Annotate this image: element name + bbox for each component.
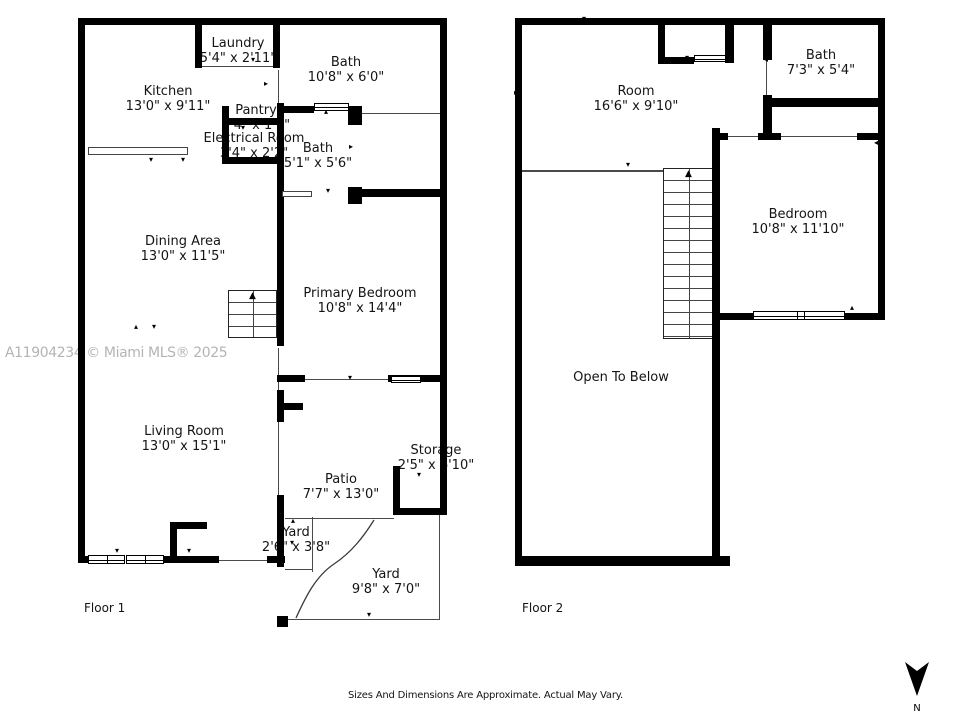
wall-segment bbox=[277, 103, 284, 346]
wall-segment bbox=[763, 18, 772, 60]
wall-segment bbox=[352, 189, 447, 197]
wall-segment bbox=[267, 556, 285, 563]
window-symbol bbox=[314, 103, 349, 111]
stairs-floor1: ▲ bbox=[228, 290, 277, 338]
door-swing-tick-icon: ▴ bbox=[291, 517, 295, 525]
yard-boundary-line bbox=[439, 515, 440, 620]
door-swing-tick-icon: ▴ bbox=[134, 323, 138, 331]
wall-segment bbox=[758, 133, 781, 140]
door-swing-tick-icon: ▾ bbox=[685, 54, 689, 62]
window-symbol bbox=[694, 55, 726, 62]
door-swing-tick-icon: ▴ bbox=[850, 304, 854, 312]
door-swing-tick-icon: ▾ bbox=[251, 56, 255, 64]
door-swing-tick-icon: ▾ bbox=[851, 99, 855, 107]
room-label-kitchen: Kitchen13'0" x 9'11" bbox=[126, 84, 211, 114]
thin-line bbox=[278, 70, 279, 103]
window-symbol bbox=[126, 555, 164, 564]
door-swing-tick-icon: ◂ bbox=[78, 446, 82, 454]
wall-segment bbox=[229, 118, 280, 125]
door-swing-tick-icon: ▾ bbox=[152, 323, 156, 331]
wall-segment bbox=[515, 18, 885, 25]
door-swing-tick-icon: ◂ bbox=[80, 80, 84, 88]
wall-segment bbox=[440, 18, 447, 515]
thin-line bbox=[202, 66, 273, 67]
wall-segment bbox=[277, 375, 305, 382]
window-mullion bbox=[145, 556, 146, 563]
wall-segment bbox=[725, 18, 734, 63]
floor2-label: Floor 2 bbox=[522, 601, 563, 615]
counter-symbol bbox=[282, 191, 312, 197]
yard-boundary-line bbox=[288, 619, 440, 620]
room-label-bedroom: Bedroom10'8" x 11'10" bbox=[752, 207, 845, 237]
door-swing-tick-icon: ▾ bbox=[582, 15, 586, 23]
door-swing-tick-icon: ▾ bbox=[290, 539, 294, 547]
yard-boundary-line bbox=[312, 517, 313, 572]
window-mullion bbox=[797, 312, 798, 319]
door-swing-tick-icon: ▾ bbox=[814, 17, 818, 25]
door-swing-tick-icon: ▾ bbox=[417, 471, 421, 479]
thin-line bbox=[362, 113, 440, 114]
floorplan-canvas: A11904234 © Miami MLS® 2025 Laundry5'4" … bbox=[0, 0, 960, 720]
wall-segment bbox=[393, 508, 447, 515]
room-label-storage: Storage2'5" x 6'10" bbox=[398, 443, 474, 473]
room-label-room: Room16'6" x 9'10" bbox=[594, 84, 679, 114]
open-to-below-line bbox=[522, 170, 663, 172]
wall-segment bbox=[712, 128, 720, 556]
stairs-up-arrow-icon: ▲ bbox=[249, 291, 256, 301]
door-swing-tick-icon: ▾ bbox=[149, 156, 153, 164]
door-swing-tick-icon: ▾ bbox=[367, 611, 371, 619]
wall-segment bbox=[195, 18, 202, 68]
door-swing-tick-icon: ▸ bbox=[514, 89, 518, 97]
wall-segment bbox=[222, 106, 229, 164]
door-swing-tick-icon: ▴ bbox=[767, 122, 771, 130]
room-label-yard: Yard9'8" x 7'0" bbox=[352, 567, 420, 597]
window-mullion bbox=[804, 312, 805, 319]
stairs-floor2: ▲ bbox=[663, 168, 714, 339]
north-indicator: N bbox=[902, 662, 932, 710]
door-swing-tick-icon: ▾ bbox=[181, 156, 185, 164]
window-mullion bbox=[107, 556, 108, 563]
room-label-laundry: Laundry5'4" x 2'11" bbox=[200, 36, 276, 66]
thin-line bbox=[304, 379, 388, 380]
disclaimer-text: Sizes And Dimensions Are Approximate. Ac… bbox=[348, 690, 623, 701]
wall-segment bbox=[515, 18, 522, 563]
room-label-living-room: Living Room13'0" x 15'1" bbox=[142, 424, 227, 454]
room-label-bath-upstairs: Bath7'3" x 5'4" bbox=[787, 48, 855, 78]
stairs-up-arrow-icon: ▲ bbox=[685, 169, 692, 179]
mls-watermark: A11904234 © Miami MLS® 2025 bbox=[5, 345, 227, 361]
door-swing-tick-icon: ▾ bbox=[626, 161, 630, 169]
thin-line bbox=[766, 60, 767, 95]
door-swing-tick-icon: ▾ bbox=[326, 187, 330, 195]
wall-segment bbox=[277, 390, 284, 422]
window-symbol bbox=[88, 555, 125, 564]
door-swing-tick-icon: ▸ bbox=[279, 291, 283, 299]
wall-segment bbox=[763, 98, 885, 107]
door-swing-tick-icon: ▾ bbox=[115, 547, 119, 555]
wall-segment bbox=[515, 556, 730, 566]
wall-segment bbox=[78, 18, 85, 563]
door-swing-tick-icon: ▾ bbox=[187, 547, 191, 555]
wall-segment bbox=[229, 157, 280, 164]
thin-line bbox=[278, 348, 279, 392]
room-label-bath-2: Bath5'1" x 5'6" bbox=[284, 141, 352, 171]
north-label: N bbox=[902, 703, 932, 714]
wall-segment bbox=[878, 18, 885, 320]
room-label-dining-area: Dining Area13'0" x 11'5" bbox=[141, 234, 226, 264]
door-swing-tick-icon: ▾ bbox=[241, 124, 245, 132]
window-symbol bbox=[391, 376, 421, 383]
thin-line bbox=[728, 136, 758, 137]
counter-symbol bbox=[88, 147, 188, 155]
thin-line bbox=[218, 560, 267, 561]
door-swing-tick-icon: ◂ bbox=[874, 139, 878, 147]
floor1-label: Floor 1 bbox=[84, 601, 125, 615]
wall-segment bbox=[348, 106, 362, 125]
window-symbol bbox=[753, 311, 845, 320]
wall-post bbox=[277, 616, 288, 627]
wall-segment bbox=[78, 18, 447, 25]
room-label-open-to-below: Open To Below bbox=[573, 370, 669, 385]
north-arrow-icon bbox=[903, 662, 931, 698]
room-label-yard-small: Yard2'6" x 3'8" bbox=[262, 525, 330, 555]
room-label-patio: Patio7'7" x 13'0" bbox=[303, 472, 379, 502]
wall-segment bbox=[857, 133, 885, 140]
wall-segment bbox=[277, 106, 314, 113]
yard-boundary-line bbox=[285, 518, 394, 519]
room-label-primary-bedroom: Primary Bedroom10'8" x 14'4" bbox=[303, 286, 416, 316]
door-swing-tick-icon: ▾ bbox=[348, 374, 352, 382]
wall-segment bbox=[712, 133, 728, 140]
thin-line bbox=[781, 136, 857, 137]
wall-segment bbox=[273, 18, 280, 68]
door-swing-tick-icon: ◂ bbox=[78, 220, 82, 228]
thin-line bbox=[278, 422, 279, 495]
wall-segment bbox=[284, 403, 303, 410]
door-swing-tick-icon: ◂ bbox=[764, 56, 768, 64]
wall-segment bbox=[170, 522, 207, 529]
yard-boundary-line bbox=[285, 569, 312, 570]
door-swing-tick-icon: ▸ bbox=[349, 143, 353, 151]
door-swing-tick-icon: ▴ bbox=[324, 108, 328, 116]
door-swing-tick-icon: ▸ bbox=[264, 80, 268, 88]
room-label-bath-1: Bath10'8" x 6'0" bbox=[308, 55, 384, 85]
